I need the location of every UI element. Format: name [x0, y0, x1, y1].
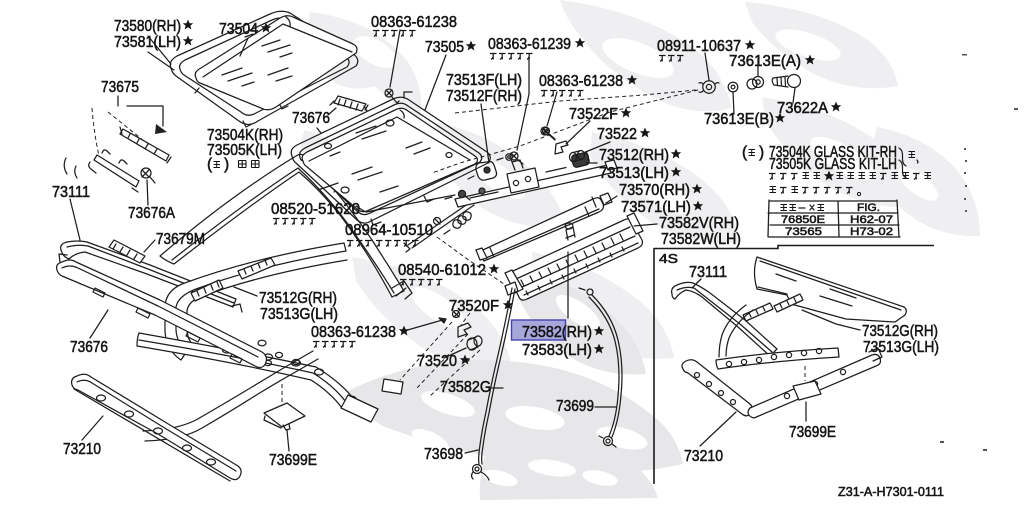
svg-text:73512G(RH): 73512G(RH)	[259, 290, 337, 307]
svg-text:73505: 73505	[425, 39, 464, 56]
svg-text:73512G(RH): 73512G(RH)	[862, 323, 938, 340]
svg-text:73210: 73210	[684, 448, 723, 465]
svg-text:73522F: 73522F	[569, 106, 618, 123]
svg-text:73565: 73565	[785, 226, 822, 238]
svg-text:73582G: 73582G	[440, 379, 491, 396]
svg-text:(: (	[207, 156, 213, 173]
svg-text:73583(LH): 73583(LH)	[522, 342, 592, 359]
svg-text:FIG.: FIG.	[857, 202, 880, 214]
svg-text:73520F: 73520F	[449, 298, 499, 315]
svg-text:): )	[224, 156, 229, 173]
svg-text:76850E: 76850E	[781, 214, 825, 226]
svg-text:73210: 73210	[63, 441, 101, 458]
svg-text:73699E: 73699E	[269, 452, 317, 469]
svg-text:73513(LH): 73513(LH)	[599, 165, 669, 182]
svg-text:73513F(LH): 73513F(LH)	[446, 72, 522, 89]
svg-text:73111: 73111	[689, 264, 727, 281]
svg-text:73505K(LH): 73505K(LH)	[207, 142, 282, 159]
svg-text:73699: 73699	[556, 398, 594, 415]
svg-text:): )	[759, 144, 764, 161]
svg-text:4S: 4S	[659, 251, 678, 266]
svg-text:08964-10510: 08964-10510	[345, 222, 433, 239]
svg-text:08363-61238: 08363-61238	[311, 324, 396, 341]
svg-text:73676: 73676	[292, 110, 330, 127]
svg-text:08540-61012: 08540-61012	[398, 262, 486, 279]
svg-text:08363-61238: 08363-61238	[371, 14, 457, 31]
svg-text:(: (	[742, 144, 748, 161]
svg-text:73676A: 73676A	[128, 205, 176, 222]
svg-text:73512(RH): 73512(RH)	[599, 147, 669, 164]
svg-text:73512F(RH): 73512F(RH)	[446, 88, 522, 105]
svg-text:H73-02: H73-02	[850, 226, 893, 238]
svg-text:73504: 73504	[219, 21, 258, 38]
svg-text:73111: 73111	[52, 184, 90, 201]
svg-text:73570(RH): 73570(RH)	[619, 182, 690, 199]
svg-text:73522: 73522	[597, 126, 637, 143]
svg-text:08520-51620: 08520-51620	[271, 201, 360, 218]
svg-text:73582(RH): 73582(RH)	[522, 324, 592, 341]
svg-text:73698: 73698	[424, 446, 463, 463]
svg-text:08363-61239: 08363-61239	[488, 36, 571, 53]
svg-text:73699E: 73699E	[789, 424, 836, 441]
svg-text:73622A: 73622A	[777, 100, 829, 117]
svg-text:73581(LH): 73581(LH)	[114, 34, 181, 51]
svg-text:Z31-A-H7301-0111: Z31-A-H7301-0111	[838, 484, 944, 499]
svg-text:73580(RH): 73580(RH)	[114, 18, 181, 35]
svg-text:73571(LH): 73571(LH)	[621, 199, 691, 216]
svg-text:73505K GLASS KIT-LH: 73505K GLASS KIT-LH	[769, 156, 897, 173]
svg-text:73679M: 73679M	[156, 231, 205, 248]
svg-text:73613E(A): 73613E(A)	[729, 53, 801, 70]
svg-text:73613E(B): 73613E(B)	[704, 111, 774, 128]
svg-text:73513G(LH): 73513G(LH)	[260, 306, 338, 323]
svg-text:08363-61238: 08363-61238	[539, 73, 623, 90]
svg-text:73513G(LH): 73513G(LH)	[863, 339, 939, 356]
svg-text:73676: 73676	[70, 339, 108, 356]
svg-text:73582V(RH): 73582V(RH)	[659, 215, 739, 232]
svg-text:73675: 73675	[101, 79, 139, 96]
svg-text:73582W(LH): 73582W(LH)	[661, 231, 741, 248]
svg-text:73520: 73520	[417, 353, 457, 370]
svg-text:H62-07: H62-07	[850, 214, 893, 226]
